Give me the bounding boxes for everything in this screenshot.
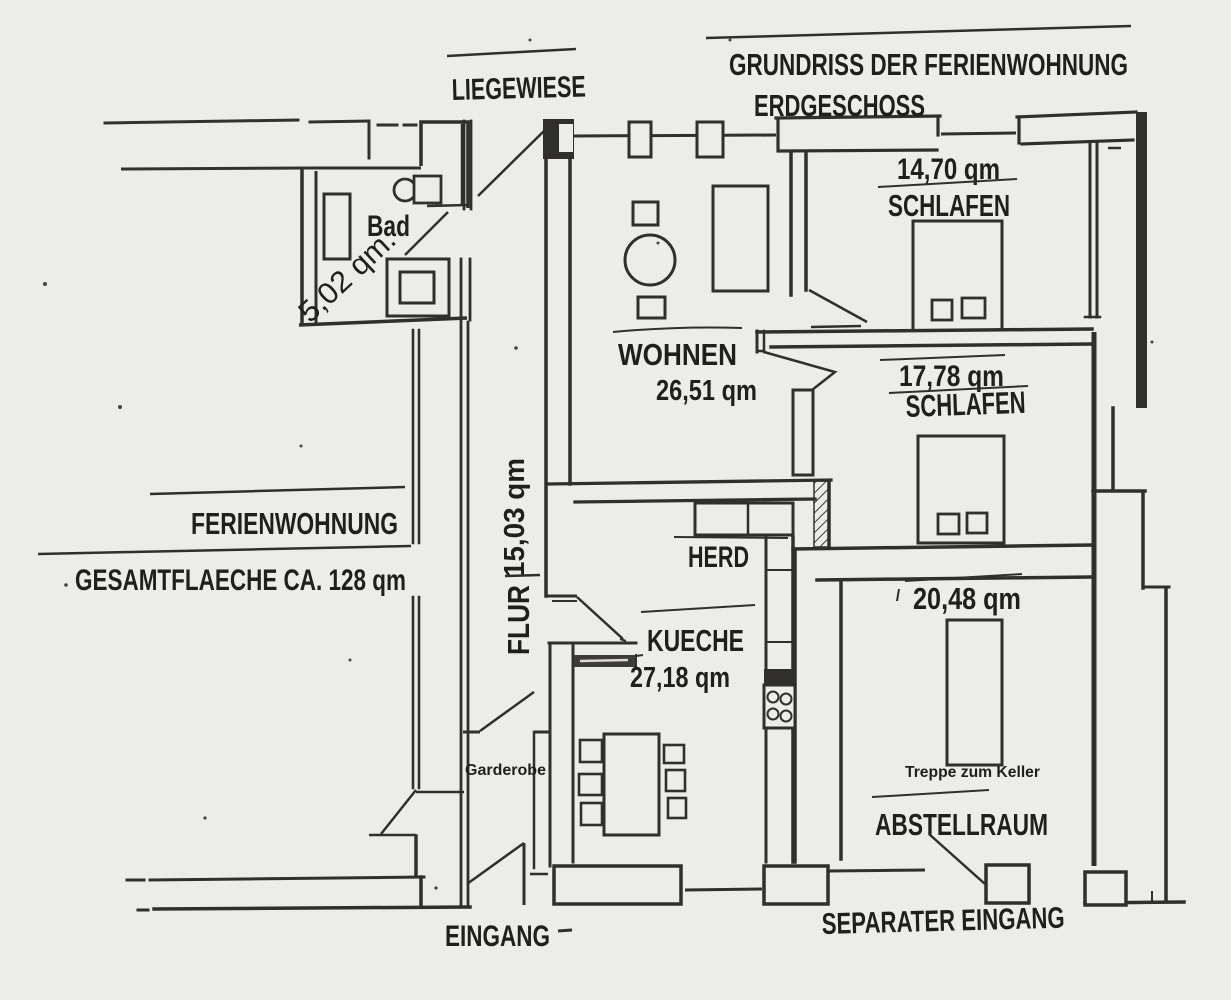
svg-text:SCHLAFEN: SCHLAFEN — [888, 188, 1010, 223]
svg-text:Garderobe: Garderobe — [465, 762, 546, 779]
svg-text:EINGANG: EINGANG — [445, 920, 550, 953]
svg-text:Treppe zum Keller: Treppe zum Keller — [905, 764, 1040, 781]
svg-text:ERDGESCHOSS: ERDGESCHOSS — [754, 88, 925, 123]
svg-text:GRUNDRISS DER FERIENWOHNUNG: GRUNDRISS DER FERIENWOHNUNG — [729, 47, 1128, 82]
svg-text:LIEGEWIESE: LIEGEWIESE — [451, 71, 586, 107]
svg-text:27,18 qm: 27,18 qm — [630, 662, 730, 694]
svg-text:GESAMTFLAECHE CA. 128 qm: GESAMTFLAECHE CA. 128 qm — [75, 564, 406, 597]
svg-text:15,03 qm: 15,03 qm — [499, 458, 531, 577]
svg-text:ABSTELLRAUM: ABSTELLRAUM — [875, 807, 1048, 842]
svg-text:SCHLAFEN: SCHLAFEN — [905, 385, 1026, 424]
svg-text:26,51 qm: 26,51 qm — [656, 375, 757, 407]
svg-text:20,48 qm: 20,48 qm — [913, 581, 1021, 616]
svg-text:WOHNEN: WOHNEN — [618, 337, 737, 372]
svg-text:FLUR: FLUR — [501, 585, 536, 655]
svg-text:FERIENWOHNUNG: FERIENWOHNUNG — [191, 506, 398, 541]
svg-text:KUECHE: KUECHE — [647, 623, 744, 658]
svg-text:SEPARATER EINGANG: SEPARATER EINGANG — [821, 902, 1065, 941]
svg-text:HERD: HERD — [688, 541, 749, 574]
